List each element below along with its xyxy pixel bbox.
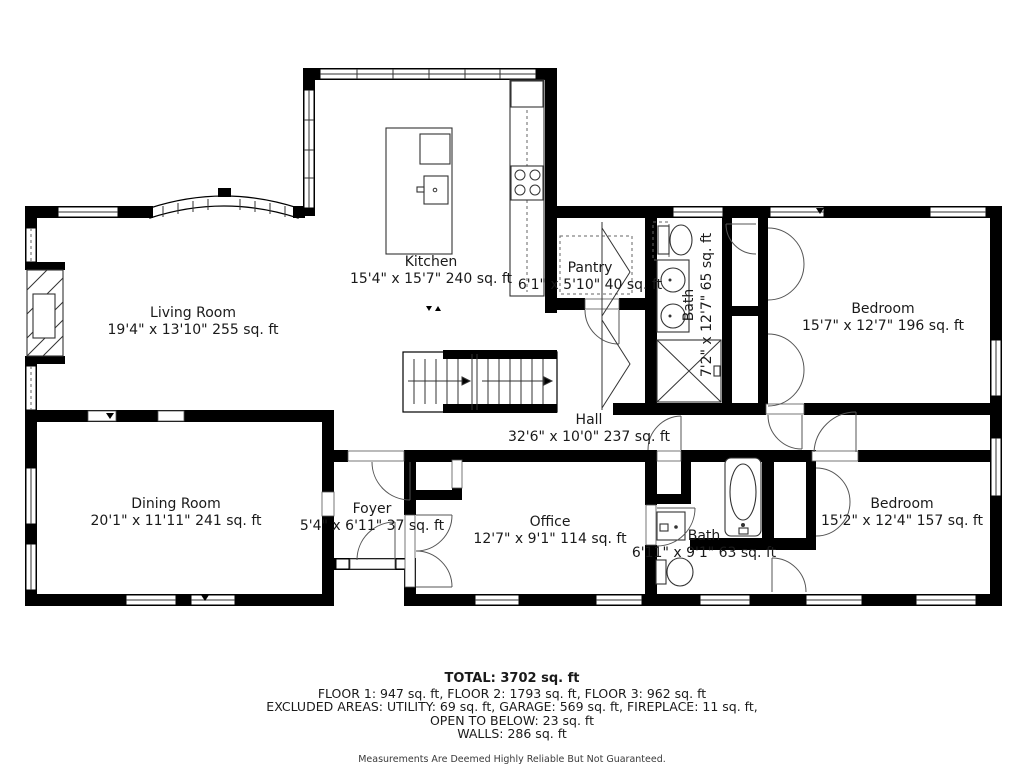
room-name: Bath: [680, 233, 698, 377]
label-kitchen: Kitchen 15'4" x 15'7" 240 sq. ft: [350, 254, 512, 288]
label-pantry: Pantry 6'1" x 5'10" 40 sq. ft: [518, 260, 662, 294]
label-foyer: Foyer 5'4" x 6'11" 37 sq. ft: [300, 501, 444, 535]
room-name: Bedroom: [821, 496, 983, 513]
room-dims: 6'11" x 9'1" 63 sq. ft: [632, 545, 776, 562]
room-dims: 5'4" x 6'11" 37 sq. ft: [300, 518, 444, 535]
summary-open-below: OPEN TO BELOW: 23 sq. ft: [0, 714, 1024, 728]
area-summary: TOTAL: 3702 sq. ft FLOOR 1: 947 sq. ft, …: [0, 672, 1024, 766]
room-dims: 12'7" x 9'1" 114 sq. ft: [473, 531, 626, 548]
toilet-tank: [658, 226, 669, 254]
room-dims: 6'1" x 5'10" 40 sq. ft: [518, 277, 662, 294]
island-sink-cabinet: [420, 134, 450, 164]
room-dims: 7'2" x 12'7" 65 sq. ft: [698, 233, 716, 377]
room-name: Foyer: [300, 501, 444, 518]
room-dims: 19'4" x 13'10" 255 sq. ft: [108, 322, 279, 339]
summary-disclaimer: Measurements Are Deemed Highly Reliable …: [0, 753, 1024, 767]
label-dining-room: Dining Room 20'1" x 11'11" 241 sq. ft: [91, 496, 262, 530]
label-bath-lower: Bath 6'11" x 9'1" 63 sq. ft: [632, 528, 776, 562]
room-name: Hall: [508, 412, 670, 429]
room-name: Office: [473, 514, 626, 531]
summary-excluded: EXCLUDED AREAS: UTILITY: 69 sq. ft, GARA…: [0, 700, 1024, 714]
staircase: [403, 350, 557, 413]
toilet-tank: [656, 560, 666, 584]
room-dims: 15'4" x 15'7" 240 sq. ft: [350, 271, 512, 288]
fireplace: [25, 262, 65, 364]
label-bedroom-upper: Bedroom 15'7" x 12'7" 196 sq. ft: [802, 301, 964, 335]
label-hall: Hall 32'6" x 10'0" 237 sq. ft: [508, 412, 670, 446]
room-dims: 15'2" x 12'4" 157 sq. ft: [821, 513, 983, 530]
floor-plan-page: Kitchen 15'4" x 15'7" 240 sq. ft Pantry …: [0, 0, 1024, 768]
room-name: Pantry: [518, 260, 662, 277]
summary-floors: FLOOR 1: 947 sq. ft, FLOOR 2: 1793 sq. f…: [0, 687, 1024, 701]
room-name: Dining Room: [91, 496, 262, 513]
room-name: Bedroom: [802, 301, 964, 318]
toilet-bowl: [667, 558, 693, 586]
room-dims: 20'1" x 11'11" 241 sq. ft: [91, 513, 262, 530]
label-office: Office 12'7" x 9'1" 114 sq. ft: [473, 514, 626, 548]
room-dims: 32'6" x 10'0" 237 sq. ft: [508, 429, 670, 446]
summary-total: TOTAL: 3702 sq. ft: [0, 672, 1024, 686]
island-sink: [424, 176, 448, 204]
bay-window-arch: [141, 188, 305, 218]
label-bedroom-lower: Bedroom 15'2" x 12'4" 157 sq. ft: [821, 496, 983, 530]
room-name: Bath: [632, 528, 776, 545]
floor-plan-drawing: [0, 0, 1024, 768]
summary-walls: WALLS: 286 sq. ft: [0, 727, 1024, 741]
bath-lower-fixtures: [656, 458, 761, 586]
refrigerator: [511, 81, 543, 107]
room-name: Living Room: [108, 305, 279, 322]
label-living-room: Living Room 19'4" x 13'10" 255 sq. ft: [108, 305, 279, 339]
accordion-doors: [602, 228, 630, 408]
label-bath-upper: Bath 7'2" x 12'7" 65 sq. ft: [680, 233, 716, 377]
room-dims: 15'7" x 12'7" 196 sq. ft: [802, 318, 964, 335]
room-name: Kitchen: [350, 254, 512, 271]
